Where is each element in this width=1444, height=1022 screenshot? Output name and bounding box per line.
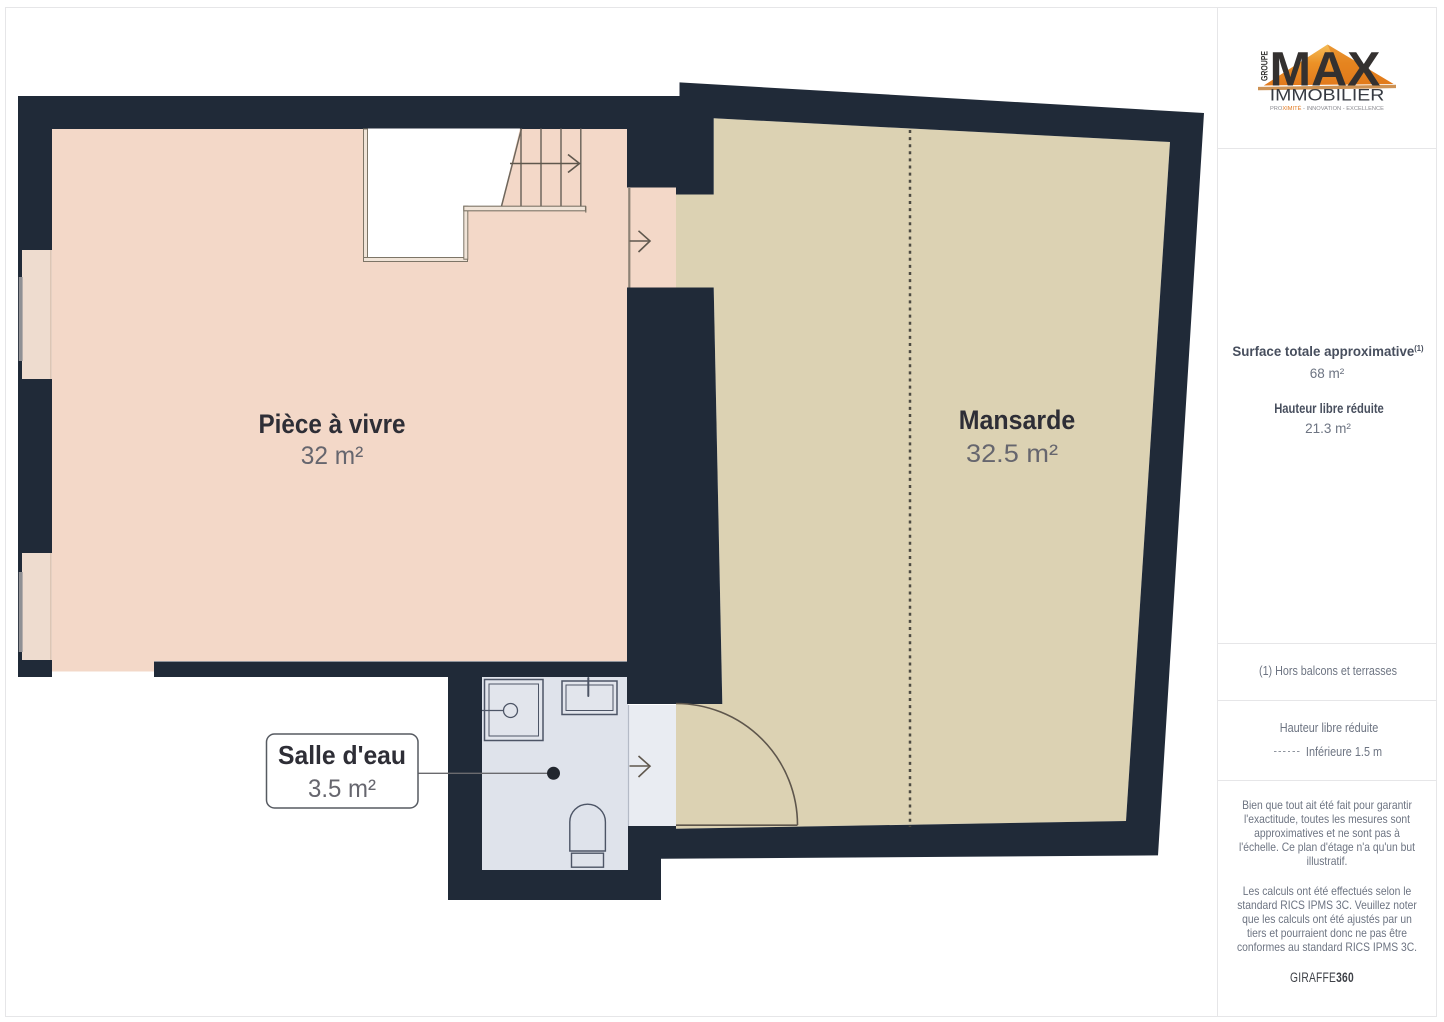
svg-text:Mansarde: Mansarde	[959, 405, 1076, 435]
svg-text:32.5 m²: 32.5 m²	[966, 440, 1058, 468]
svg-text:Salle d'eau: Salle d'eau	[278, 740, 406, 770]
svg-text:Pièce à vivre: Pièce à vivre	[259, 409, 406, 439]
svg-text:3.5 m²: 3.5 m²	[308, 775, 376, 803]
svg-text:32 m²: 32 m²	[301, 442, 364, 470]
svg-text:PROXIMITÉ - INNOVATION - EXCEL: PROXIMITÉ - INNOVATION - EXCELLENCE	[1270, 105, 1385, 112]
svg-text:GROUPE: GROUPE	[1260, 51, 1270, 81]
svg-text:IMMOBILIER: IMMOBILIER	[1270, 86, 1385, 105]
